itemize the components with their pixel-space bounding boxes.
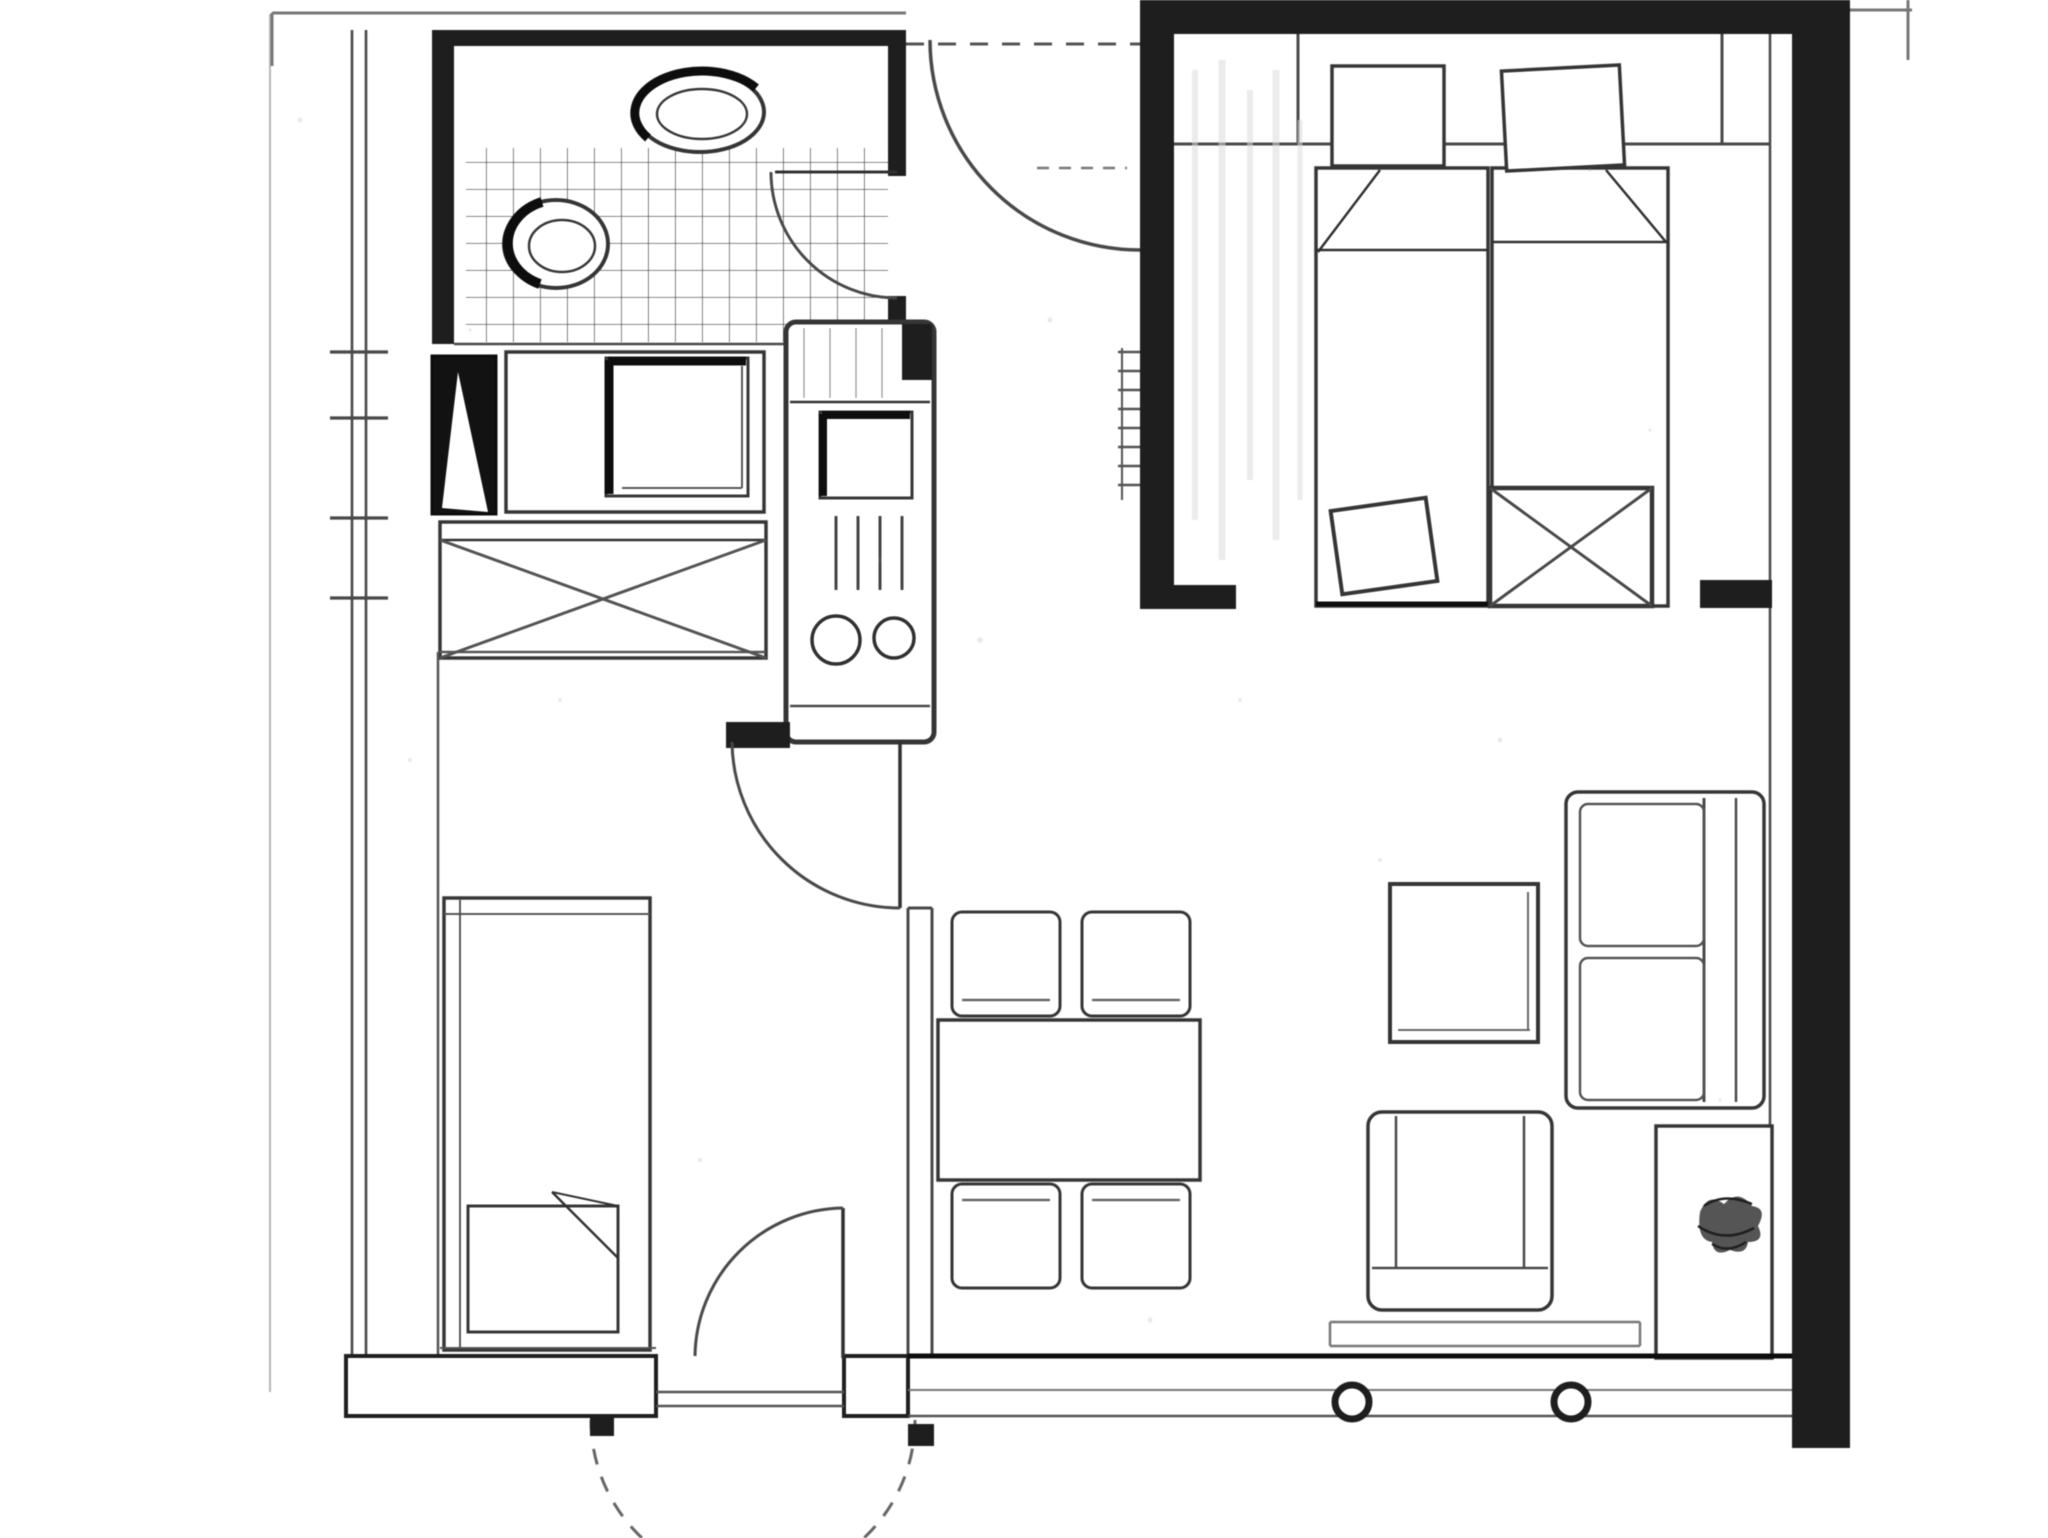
vent-shaft — [432, 356, 496, 514]
unit-small-sink — [820, 412, 912, 498]
floor-plan-page — [0, 0, 2048, 1538]
bathroom-east-wall-upper — [888, 30, 906, 176]
blanket-chest — [1490, 488, 1652, 606]
alcove-bed — [444, 898, 650, 1350]
entry-door — [906, 40, 1140, 250]
south-wall-left — [346, 1356, 656, 1416]
window-fitting-circle — [1335, 1385, 1369, 1419]
side-table — [1390, 884, 1538, 1042]
pencil-shading — [1195, 60, 1300, 560]
x-cabinet — [440, 522, 766, 658]
sideboard — [1656, 1126, 1772, 1358]
sink-counter — [506, 352, 764, 512]
entry-door-arc — [930, 40, 1140, 250]
entrance-door-arc — [695, 1208, 843, 1356]
washbasin — [635, 71, 764, 152]
armchair — [1368, 1112, 1552, 1310]
kitchen — [432, 322, 934, 742]
pillow-right — [1501, 65, 1624, 171]
bedroom-north-wall — [1140, 0, 1850, 34]
door-stop-right — [908, 1424, 934, 1446]
bathroom — [432, 30, 906, 346]
bedroom-south-wall-piece — [1700, 580, 1772, 608]
south-wall-middle — [844, 1356, 908, 1416]
cooker-unit-outline — [786, 322, 934, 742]
bedroom-west-wall-foot — [1140, 585, 1236, 609]
sink-bowl — [606, 358, 748, 496]
left-wall-window-ticks — [330, 352, 388, 598]
bathroom-west-wall — [432, 30, 454, 344]
floor-plan-drawing — [0, 0, 2048, 1538]
right-exterior-wall — [1792, 0, 1850, 1448]
window-bench-track — [1330, 1322, 1640, 1346]
alcove-bed-pillow — [468, 1206, 618, 1332]
cabinet-outline — [440, 522, 766, 658]
cooker-unit-corner-cap — [902, 324, 932, 380]
alcove-door-arc — [732, 742, 900, 908]
side-table-outline — [1390, 884, 1538, 1042]
alcove-door — [732, 740, 900, 908]
bathroom-north-wall — [432, 30, 906, 46]
south-window-front — [908, 1356, 1792, 1419]
pillow-left — [1332, 66, 1444, 166]
window-fitting-circle — [1554, 1385, 1588, 1419]
living-dining — [938, 792, 1772, 1358]
sofa — [1566, 792, 1764, 1108]
alcove-wall-stub — [726, 722, 790, 748]
sleeping-alcove — [438, 652, 932, 1356]
cooker-unit — [786, 322, 934, 742]
wc-pan — [504, 200, 608, 288]
dining-table — [938, 1020, 1200, 1180]
bedroom — [1140, 0, 1850, 609]
cushion-at-bed-foot — [1331, 498, 1438, 595]
door-stop-left — [590, 1414, 614, 1436]
outside-swing-dashed-arc — [591, 1420, 915, 1538]
sofa-outline — [1566, 792, 1764, 1108]
bedroom-west-wall — [1140, 34, 1174, 609]
